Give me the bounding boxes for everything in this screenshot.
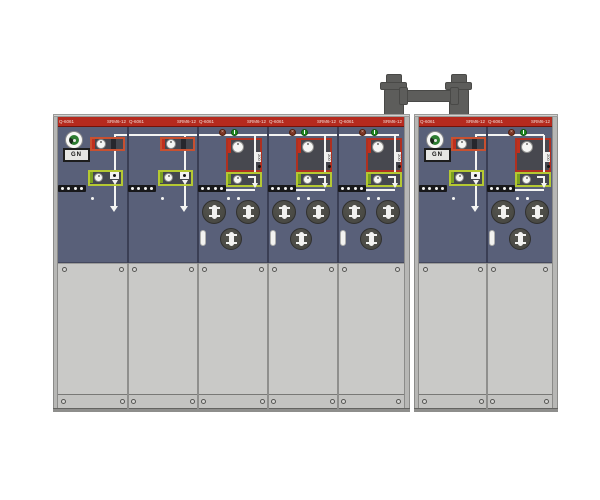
fuse-label-strip	[298, 140, 301, 153]
fuse-label-strip	[228, 140, 231, 153]
fuse-dial	[272, 200, 296, 224]
indicator-lamp-red: ×	[508, 129, 515, 136]
terminal-dot	[144, 187, 147, 190]
indicator-lamp-green	[301, 129, 308, 136]
indicator-lamp-green	[231, 129, 238, 136]
mimic-node-dot	[91, 197, 94, 200]
spare-fuse-peg	[200, 230, 206, 246]
fuse-dial	[220, 228, 242, 250]
fuse-glyph	[316, 205, 321, 219]
switch-label-strip	[92, 139, 95, 149]
fuse-glyph	[246, 205, 251, 219]
indicator-lamp-green	[520, 129, 527, 136]
mimic-node-dot	[227, 197, 230, 200]
earth-operating-shaft	[94, 173, 103, 182]
terminal-strip	[268, 185, 296, 192]
panel-divider	[267, 127, 269, 263]
terminal-dot	[341, 187, 344, 190]
mechanism-dot	[398, 165, 401, 168]
panel-header-code: Q-6061	[59, 118, 92, 125]
nameplate: GN	[63, 148, 90, 162]
mimic-node-dot	[237, 197, 240, 200]
earth-operating-shaft	[303, 175, 312, 184]
panel-divider	[337, 263, 339, 410]
kick-screw	[422, 399, 427, 404]
fuse-dial	[509, 228, 531, 250]
door-screw	[62, 267, 67, 272]
panel-header-model: SRM6-12	[301, 118, 336, 125]
kick-screw	[120, 399, 125, 404]
base-edge	[53, 408, 410, 412]
kick-screw	[341, 399, 346, 404]
nameplate: GN	[424, 148, 451, 162]
earth-operating-shaft	[373, 175, 382, 184]
kick-screw	[490, 399, 495, 404]
brand-logo-mark	[430, 135, 440, 145]
spare-fuse-peg	[270, 230, 276, 246]
fuse-glyph	[299, 232, 304, 246]
cable-arrow	[471, 206, 479, 212]
panel-divider	[267, 263, 269, 410]
bridge-duct	[403, 90, 455, 102]
panel-header-model: SRM6-12	[231, 118, 266, 125]
mechanism-knob	[111, 139, 116, 149]
fuse-dial	[360, 228, 382, 250]
terminal-dot	[214, 187, 217, 190]
fuse-glyph	[501, 205, 506, 219]
terminal-dot	[422, 187, 425, 190]
panel-divider	[486, 263, 488, 410]
cabinet-right-cabinet: Q-6061SRM6-12GNQ-6061SRM6-12×200	[414, 114, 558, 412]
terminal-dot	[290, 187, 293, 190]
terminal-dot	[271, 187, 274, 190]
panel-header-code: Q-6061	[199, 118, 232, 125]
mechanism-dot	[328, 165, 331, 168]
position-indicator-chip	[180, 172, 189, 179]
fuse-rating-chip: 200	[326, 152, 331, 162]
panel-header-model: SRM6-12	[161, 118, 196, 125]
terminal-dot	[496, 187, 499, 190]
indicator-lamp-red: ×	[219, 129, 226, 136]
kick-screw	[61, 399, 66, 404]
panel-header-model: SRM6-12	[369, 118, 402, 125]
terminal-dot	[509, 187, 512, 190]
bridge-flange-right	[450, 87, 459, 105]
door-screw	[272, 267, 277, 272]
position-indicator-chip	[471, 172, 480, 179]
fuse-rating-chip: 200	[256, 152, 261, 162]
indicator-lamp-red: ×	[359, 129, 366, 136]
kick-screw	[260, 399, 265, 404]
terminal-dot	[490, 187, 493, 190]
terminal-strip	[58, 185, 86, 192]
panel-header-code: Q-6061	[339, 118, 370, 125]
door-screw	[329, 267, 334, 272]
panel-divider	[197, 263, 199, 410]
terminal-dot	[503, 187, 506, 190]
terminal-dot	[441, 187, 444, 190]
earth-label-strip	[228, 174, 231, 184]
terminal-dot	[347, 187, 350, 190]
cabinet-side-panel-right	[404, 117, 410, 412]
terminal-dot	[201, 187, 204, 190]
door-screw	[423, 267, 428, 272]
terminal-dot	[284, 187, 287, 190]
spare-fuse-peg	[340, 230, 346, 246]
cabinet-left-cabinet: Q-6061SRM6-12GNQ-6061SRM6-12Q-6061SRM6-1…	[53, 114, 410, 412]
fuse-glyph	[369, 232, 374, 246]
panel-header-code: Q-6061	[488, 118, 519, 125]
fuse-glyph	[535, 205, 540, 219]
kick-screw	[271, 399, 276, 404]
terminal-dot	[74, 187, 77, 190]
terminal-dot	[360, 187, 363, 190]
mimic-bus-line	[114, 134, 399, 136]
switchgear-front-view: Q-6061SRM6-12GNQ-6061SRM6-12Q-6061SRM6-1…	[0, 0, 600, 500]
panel-header-model: SRM6-12	[91, 118, 126, 125]
fuse-glyph	[386, 205, 391, 219]
fuse-dial	[202, 200, 226, 224]
mimic-node-dot	[377, 197, 380, 200]
bridge-flange-left	[399, 87, 408, 105]
fuse-dial	[290, 228, 312, 250]
spare-fuse-peg	[489, 230, 495, 246]
brand-logo	[65, 131, 83, 149]
earth-arrow	[473, 180, 479, 185]
mechanism-knob	[181, 139, 186, 149]
door-screw	[478, 267, 483, 272]
operating-shaft	[96, 139, 106, 149]
earth-label-strip	[517, 174, 520, 184]
operating-shaft	[457, 139, 467, 149]
panel-header-model: SRM6-12	[451, 118, 485, 125]
mimic-link-line	[296, 189, 325, 191]
door-screw	[395, 267, 400, 272]
terminal-dot	[220, 187, 223, 190]
terminal-dot	[137, 187, 140, 190]
fuse-glyph	[212, 205, 217, 219]
brand-logo	[426, 131, 444, 149]
door-screw	[119, 267, 124, 272]
terminal-dot	[207, 187, 210, 190]
kick-screw	[330, 399, 335, 404]
terminal-dot	[67, 187, 70, 190]
cabinet-side-panel-right	[552, 117, 558, 412]
cable-arrow	[110, 206, 118, 212]
fuse-rating-chip: 200	[396, 152, 401, 162]
terminal-dot	[150, 187, 153, 190]
fuse-glyph	[518, 232, 523, 246]
earth-arrow	[541, 183, 547, 188]
fuse-dial	[491, 200, 515, 224]
terminal-dot	[435, 187, 438, 190]
earth-label-strip	[90, 172, 93, 183]
indicator-lamp-red: ×	[289, 129, 296, 136]
panel-header-code: Q-6061	[129, 118, 162, 125]
earth-label-strip	[160, 172, 163, 183]
fuse-label-strip	[517, 140, 520, 153]
earth-label-strip	[298, 174, 301, 184]
panel-divider	[486, 127, 488, 263]
operating-shaft	[372, 141, 384, 153]
mimic-link-line	[226, 189, 255, 191]
earth-label-strip	[451, 172, 454, 183]
cable-arrow	[180, 206, 188, 212]
panel-divider	[337, 127, 339, 263]
kick-plate	[58, 394, 404, 408]
terminal-dot	[131, 187, 134, 190]
terminal-strip	[128, 185, 156, 192]
earth-arrow	[392, 183, 398, 188]
mechanism-knob	[472, 139, 477, 149]
panel-divider	[127, 127, 129, 263]
earth-operating-shaft	[522, 175, 531, 184]
fuse-label-strip	[368, 140, 371, 153]
terminal-strip	[487, 185, 515, 192]
terminal-strip	[338, 185, 366, 192]
terminal-dot	[354, 187, 357, 190]
mimic-link-line	[515, 189, 544, 191]
mimic-link-line	[366, 189, 395, 191]
fuse-dial	[236, 200, 260, 224]
operating-shaft	[302, 141, 314, 153]
door-screw	[342, 267, 347, 272]
door-screw	[543, 267, 548, 272]
operating-shaft	[166, 139, 176, 149]
terminal-dot	[277, 187, 280, 190]
operating-shaft	[521, 141, 533, 153]
earth-arrow	[252, 183, 258, 188]
terminal-strip	[198, 185, 226, 192]
mimic-node-dot	[526, 197, 529, 200]
mimic-node-dot	[297, 197, 300, 200]
mimic-node-dot	[307, 197, 310, 200]
panel-header-code: Q-6061	[420, 118, 452, 125]
door-screw	[132, 267, 137, 272]
panel-header-model: SRM6-12	[518, 118, 551, 125]
mechanism-dot	[547, 165, 550, 168]
panel-divider	[127, 263, 129, 410]
fuse-glyph	[229, 232, 234, 246]
fuse-dial	[376, 200, 400, 224]
panel-divider	[197, 127, 199, 263]
earth-arrow	[182, 180, 188, 185]
switch-label-strip	[453, 139, 456, 149]
fuse-glyph	[352, 205, 357, 219]
terminal-strip	[419, 185, 447, 192]
mimic-node-dot	[452, 197, 455, 200]
door-screw	[491, 267, 496, 272]
kick-screw	[190, 399, 195, 404]
panel-header-code: Q-6061	[269, 118, 302, 125]
kick-screw	[396, 399, 401, 404]
mechanism-dot	[258, 165, 261, 168]
fuse-glyph	[282, 205, 287, 219]
mimic-node-dot	[367, 197, 370, 200]
earth-operating-shaft	[233, 175, 242, 184]
switch-label-strip	[162, 139, 165, 149]
kick-screw	[131, 399, 136, 404]
earth-arrow	[322, 183, 328, 188]
kick-screw	[479, 399, 484, 404]
indicator-lamp-green	[371, 129, 378, 136]
door-screw	[189, 267, 194, 272]
operating-shaft	[232, 141, 244, 153]
terminal-dot	[428, 187, 431, 190]
fuse-dial	[342, 200, 366, 224]
fuse-dial	[306, 200, 330, 224]
terminal-dot	[80, 187, 83, 190]
terminal-dot	[61, 187, 64, 190]
mimic-node-dot	[161, 197, 164, 200]
earth-operating-shaft	[455, 173, 464, 182]
earth-operating-shaft	[164, 173, 173, 182]
kick-screw	[201, 399, 206, 404]
door-screw	[202, 267, 207, 272]
cable-compartment	[58, 263, 404, 394]
fuse-dial	[525, 200, 549, 224]
brand-logo-mark	[69, 135, 79, 145]
fuse-rating-chip: 200	[545, 152, 550, 162]
earth-label-strip	[368, 174, 371, 184]
position-indicator-chip	[110, 172, 119, 179]
door-screw	[259, 267, 264, 272]
mimic-node-dot	[516, 197, 519, 200]
earth-arrow	[112, 180, 118, 185]
kick-screw	[544, 399, 549, 404]
